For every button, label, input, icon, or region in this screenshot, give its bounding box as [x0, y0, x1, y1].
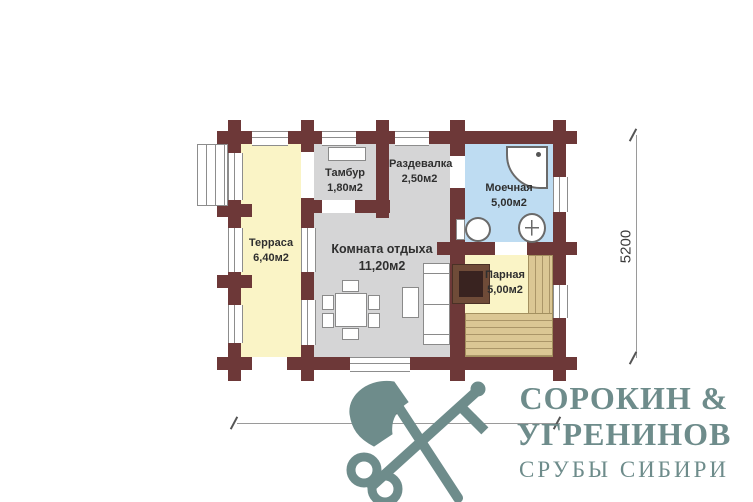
chair [322, 295, 334, 310]
dining-table [335, 293, 367, 327]
tambour-cabinet [328, 147, 366, 161]
room-area: 5,00м2 [467, 283, 543, 298]
room-area: 5,00м2 [465, 196, 553, 211]
sink [518, 213, 546, 243]
room-name: Тамбур [314, 166, 376, 181]
room-area: 1,80м2 [314, 181, 376, 196]
chair [368, 313, 380, 328]
window-top-tambour [322, 131, 356, 146]
room-area: 11,20м2 [314, 258, 450, 275]
toilet-bowl [465, 217, 491, 242]
door-dressing-washing [450, 156, 465, 188]
chair [342, 280, 359, 292]
window-top-dressing [395, 131, 429, 146]
room-name: Терраса [241, 236, 301, 251]
room-label-rest: Комната отдыха 11,20м2 [314, 241, 450, 275]
coffee-table [402, 287, 419, 318]
shower-head-icon [536, 152, 541, 157]
toilet-tank [456, 219, 465, 240]
room-label-steam: Парная 5,00м2 [467, 268, 543, 298]
window-left-1 [228, 153, 243, 200]
window-right-washing [553, 177, 568, 212]
window-bottom-rest [350, 357, 410, 372]
floorplan-canvas: Терраса 6,40м2 Тамбур 1,80м2 Раздевалка … [0, 0, 753, 502]
chair [322, 313, 334, 328]
chair [368, 295, 380, 310]
dimension-height-label: 5200 [618, 207, 635, 287]
axe-key-logo-icon [338, 372, 510, 502]
sofa [423, 263, 450, 345]
door-tambour-rest [322, 200, 355, 213]
room-label-dressing: Раздевалка 2,50м2 [389, 157, 450, 187]
room-label-washing: Моечная 5,00м2 [465, 181, 553, 211]
door-terrace-tambour [301, 152, 314, 198]
logo-title-line2: УГРЕНИНОВ [498, 416, 750, 452]
room-label-terrace: Терраса 6,40м2 [241, 236, 301, 266]
chair [342, 328, 359, 340]
window-top-terrace [252, 131, 288, 146]
room-label-tambour: Тамбур 1,80м2 [314, 166, 376, 196]
opening-terrace-south [252, 357, 287, 370]
door-washing-steam [495, 242, 527, 255]
log-end-left-2 [217, 275, 252, 288]
entrance-steps [197, 144, 228, 206]
window-right-steam [553, 285, 568, 318]
dimension-line-height [636, 135, 637, 358]
room-name: Комната отдыха [314, 241, 450, 258]
steam-bench-bottom [465, 313, 553, 357]
room-area: 6,40м2 [241, 251, 301, 266]
room-name: Раздевалка [389, 157, 450, 172]
dimension-tick [629, 351, 637, 364]
logo-subtitle: СРУБЫ СИБИРИ [498, 455, 750, 485]
room-name: Моечная [465, 181, 553, 196]
logo-text-block: СОРОКИН & УГРЕНИНОВ СРУБЫ СИБИРИ [498, 380, 750, 485]
room-area: 2,50м2 [389, 172, 450, 187]
logo-title-line1: СОРОКИН & [498, 380, 750, 416]
room-name: Парная [467, 268, 543, 283]
window-left-3 [228, 305, 243, 343]
window-terrace-rest-2 [301, 300, 316, 345]
